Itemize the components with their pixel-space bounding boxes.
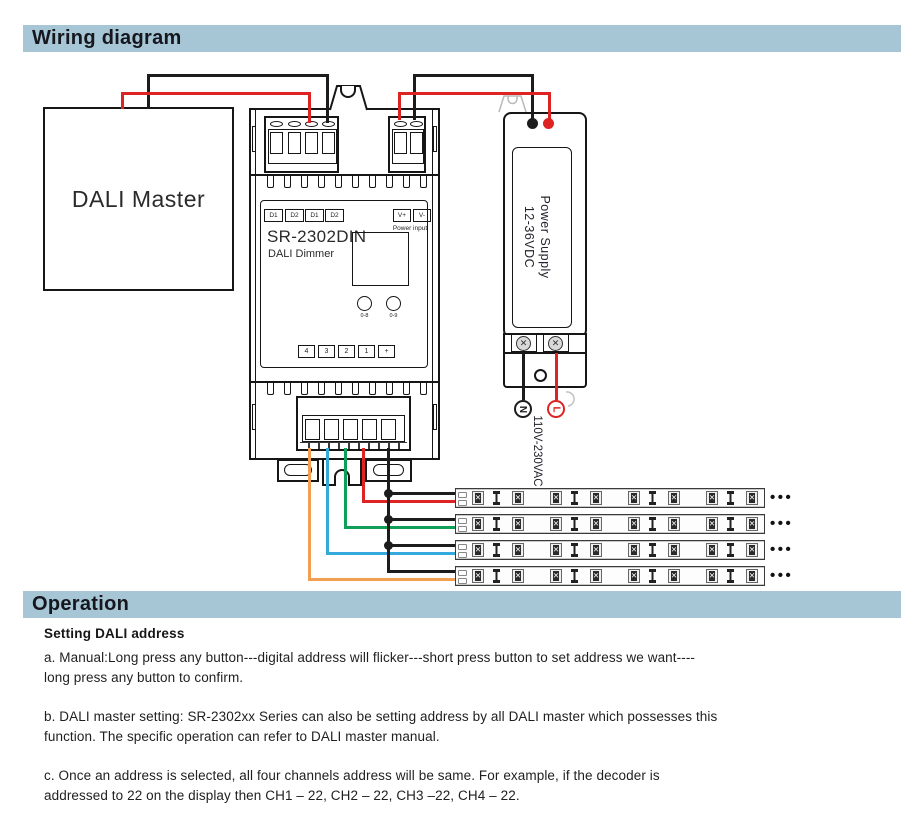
din-tooth [420,176,427,188]
led-chip: ✕ [746,517,758,531]
device-side-slot [252,126,256,152]
terminal-port [381,419,396,440]
terminal-port [322,132,335,154]
address-button-2 [386,296,401,311]
dali-terminal-label: D2 [285,209,304,222]
terminal-port [362,419,377,440]
led-chip: ✕ [628,543,640,557]
resistor [649,491,656,505]
top-din-clip-notch [341,86,355,97]
wire-segment-neutral [522,353,525,400]
strip-continuation-dots: ••• [770,516,802,532]
wire-dali-black [147,74,329,77]
terminal-port [343,419,358,440]
din-tooth [284,176,291,188]
resistor [649,517,656,531]
wire-dali-red [121,92,311,95]
resistor [571,517,578,531]
wire-power-black [531,74,534,122]
wire-segment-live [555,353,558,400]
live-terminal-symbol: L [547,400,565,418]
product-type-label: DALI Dimmer [268,248,334,260]
led-chip: ✕ [590,517,602,531]
wire-clamp-strip [300,442,407,450]
digital-display-window [352,232,409,286]
led-chip: ✕ [746,491,758,505]
wiring-section-header: Wiring diagram [23,25,901,52]
device-side-slot [433,126,437,152]
wire-ch2-green [344,526,457,529]
led-chip: ✕ [550,543,562,557]
button-label: 0-8 [353,313,376,319]
terminal-port [410,132,423,154]
wire-common-black [387,448,390,573]
terminal-port [270,132,283,154]
strip-continuation-dots: ••• [770,568,802,584]
led-strip-4: ✕✕✕✕✕✕✕✕ [455,566,765,586]
led-chip: ✕ [472,491,484,505]
strip-connector-pin [458,492,467,498]
led-chip: ✕ [512,543,524,557]
strip-connector-pin [458,552,467,558]
led-chip: ✕ [628,491,640,505]
dali-master-box: DALI Master [43,107,234,291]
wire-common-black [387,518,457,521]
led-chip: ✕ [628,569,640,583]
din-tooth [318,383,325,395]
strip-continuation-dots: ••• [770,490,802,506]
resistor [649,569,656,583]
output-terminal-label: 2 [338,345,355,358]
terminal-screw [305,121,318,127]
psu-mount-hole [534,369,547,382]
din-tooth [403,383,410,395]
device-side-slot [433,404,437,430]
resistor [727,517,734,531]
terminal-port [305,419,320,440]
dali-master-label: DALI Master [72,186,205,213]
strip-connector-pin [458,518,467,524]
wire-power-black [413,74,416,120]
resistor [571,491,578,505]
wire-power-red [398,92,401,120]
psu-top-clip-notch [508,96,517,104]
din-tooth [318,176,325,188]
led-strip-2: ✕✕✕✕✕✕✕✕ [455,514,765,534]
operation-section-header: Operation [23,591,901,618]
psu-top-clip [499,96,526,112]
led-chip: ✕ [668,491,680,505]
din-tooth [386,383,393,395]
wire-common-black [387,570,457,573]
terminal-port [305,132,318,154]
din-tooth [403,176,410,188]
setting-dali-address-heading: Setting DALI address [44,626,185,641]
wire-ch3-blue [326,448,329,555]
wire-dali-black [326,74,329,123]
strip-connector-pin [458,526,467,532]
din-tooth [335,383,342,395]
din-tooth [335,176,342,188]
led-chip: ✕ [706,491,718,505]
wire-power-red [398,92,551,95]
din-tooth [420,383,427,395]
top-din-clip [330,86,367,110]
wire-junction-dot [384,515,393,524]
address-button-1 [357,296,372,311]
led-chip: ✕ [472,517,484,531]
din-teeth-row [267,176,427,188]
resistor [727,491,734,505]
strip-connector-pin [458,578,467,584]
dali-terminal-block [264,116,339,173]
wire-power-black [413,74,534,77]
wire-common-black [387,492,457,495]
resistor [493,491,500,505]
wiring-section-title: Wiring diagram [23,27,182,50]
wire-ch1-red [362,500,457,503]
wire-ch1-red [362,448,365,503]
psu-bottom-clip-mark [566,392,574,406]
wire-ch4-orange [308,578,457,581]
led-chip: ✕ [472,543,484,557]
led-chip: ✕ [668,543,680,557]
din-tooth [301,383,308,395]
resistor [649,543,656,557]
led-chip: ✕ [746,543,758,557]
resistor [571,543,578,557]
terminal-screw [270,121,283,127]
operation-paragraph-a: a. Manual:Long press any button---digita… [44,648,894,687]
dali-terminal-label: D1 [305,209,324,222]
psu-screw: ✕ [548,336,563,351]
psu-positive-terminal-dot [543,118,554,129]
strip-connector-pin [458,544,467,550]
led-chip: ✕ [706,543,718,557]
power-terminal-block [388,116,426,173]
neutral-letter: N [517,405,528,412]
operation-paragraph-b: b. DALI master setting: SR-2302xx Series… [44,707,894,746]
output-terminal-label: + [378,345,395,358]
wire-ch3-blue [326,552,457,555]
output-terminal-block [296,396,411,451]
led-chip: ✕ [590,491,602,505]
operation-section-title: Operation [23,593,129,616]
output-terminal-label: 4 [298,345,315,358]
device-side-slot [252,404,256,430]
wire-ch4-orange [308,448,311,581]
led-strip-3: ✕✕✕✕✕✕✕✕ [455,540,765,560]
led-chip: ✕ [550,491,562,505]
power-supply-rating: 12-36VDC [522,157,536,317]
din-tooth [267,383,274,395]
power-supply-name: Power Supply [538,157,552,317]
led-chip: ✕ [512,491,524,505]
power-input-caption: Power input [386,225,434,232]
din-tooth [352,383,359,395]
led-chip: ✕ [668,517,680,531]
led-chip: ✕ [512,569,524,583]
led-chip: ✕ [550,569,562,583]
led-chip: ✕ [472,569,484,583]
led-strip-1: ✕✕✕✕✕✕✕✕ [455,488,765,508]
button-label: 0-9 [382,313,405,319]
led-chip: ✕ [746,569,758,583]
din-tooth [352,176,359,188]
wire-common-black [387,544,457,547]
wire-dali-red [308,92,311,123]
din-tooth [267,176,274,188]
resistor [493,569,500,583]
led-chip: ✕ [628,517,640,531]
power-supply-divider [503,352,587,354]
din-foot-left [277,459,319,482]
wire-junction-dot [384,541,393,550]
led-chip: ✕ [590,543,602,557]
din-tooth [301,176,308,188]
wire-ch2-green [344,448,347,529]
din-tooth [369,383,376,395]
device-face-panel: D1 D2 D1 D2 V+ V- Power input SR-2302DIN… [260,200,428,368]
strip-continuation-dots: ••• [770,542,802,558]
output-terminal-label: 1 [358,345,375,358]
dali-terminal-label: D1 [264,209,283,222]
strip-connector-pin [458,500,467,506]
terminal-port [288,132,301,154]
terminal-port [324,419,339,440]
din-tooth [284,383,291,395]
din-tooth [369,176,376,188]
terminal-port [394,132,407,154]
din-teeth-row [267,383,427,395]
resistor [571,569,578,583]
manual-page: Wiring diagram DALI Master D1 D2 [0,0,901,813]
led-chip: ✕ [550,517,562,531]
din-tooth [386,176,393,188]
strip-connector-pin [458,570,467,576]
led-chip: ✕ [668,569,680,583]
live-letter: L [550,406,561,412]
led-chip: ✕ [512,517,524,531]
terminal-screw [394,121,407,127]
power-terminal-label: V- [413,209,431,222]
power-terminal-label: V+ [393,209,411,222]
resistor [727,543,734,557]
psu-screw: ✕ [516,336,531,351]
operation-paragraph-c: c. Once an address is selected, all four… [44,766,894,805]
neutral-terminal-symbol: N [514,400,532,418]
terminal-screw [288,121,301,127]
led-chip: ✕ [706,517,718,531]
wire-junction-dot [384,489,393,498]
output-terminal-label: 3 [318,345,335,358]
psu-negative-terminal-dot [527,118,538,129]
resistor [727,569,734,583]
led-chip: ✕ [590,569,602,583]
terminal-screw [410,121,423,127]
resistor [493,543,500,557]
dali-terminal-label: D2 [325,209,344,222]
led-chip: ✕ [706,569,718,583]
resistor [493,517,500,531]
